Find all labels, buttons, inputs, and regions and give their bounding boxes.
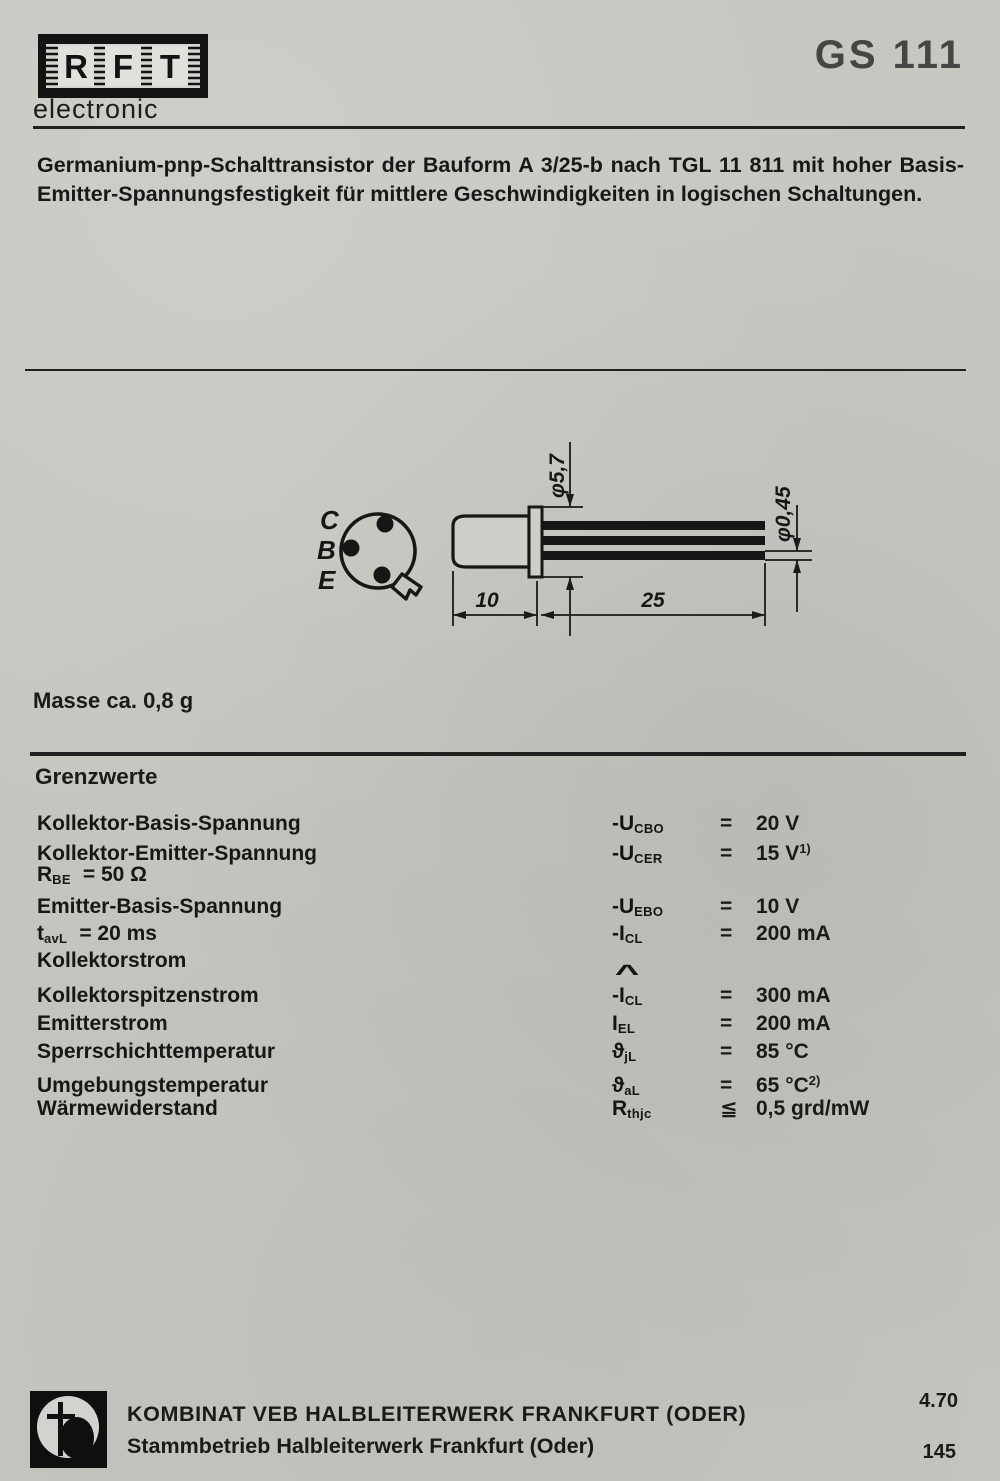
limit-symbol: ^-ICL [612, 983, 720, 1014]
footer-company-line1: KOMBINAT VEB HALBLEITERWERK FRANKFURT (O… [127, 1402, 746, 1427]
limit-row-emitter-current: Emitterstrom IEL = 200 mA [37, 1011, 967, 1042]
footer-company-line2: Stammbetrieb Halbleiterwerk Frankfurt (O… [127, 1434, 594, 1459]
dim-arrow [566, 577, 574, 590]
limit-label: Kollektorstrom [37, 948, 612, 974]
pin-dot-c [377, 516, 394, 533]
pin-label-b: B [317, 535, 336, 565]
package-drawing: C B E φ5,7 [280, 430, 840, 660]
description-paragraph: Germanium-pnp-Schalttransistor der Baufo… [37, 151, 964, 209]
limit-relation: = [720, 894, 756, 920]
mass-note: Masse ca. 0,8 g [33, 688, 193, 714]
limit-row-collector-current: Kollektorstrom [37, 948, 967, 974]
brand-subtitle: electronic [33, 94, 159, 125]
rft-letter-r: R [64, 48, 88, 85]
datasheet-page: R F T electronic GS 111 Germanium-pnp-Sc… [0, 0, 1000, 1481]
transistor-flange [529, 507, 542, 577]
dim-label-body-length: 10 [475, 589, 499, 612]
footnote-marker: 1) [799, 841, 811, 856]
limit-value: 65 °C2) [756, 1068, 967, 1099]
dim-lengths [453, 563, 765, 626]
limit-relation: ≦ [720, 1096, 756, 1122]
limit-value: 0,5 grd/mW [756, 1096, 967, 1122]
limit-relation: = [720, 983, 756, 1009]
hfo-logo [30, 1391, 107, 1468]
dim-arrow [524, 611, 537, 619]
limit-label: Kollektorspitzenstrom [37, 983, 612, 1009]
transistor-body [453, 516, 529, 567]
limit-symbol: Rthjc [612, 1096, 720, 1127]
section-rule-1 [25, 369, 966, 371]
limit-symbol: ϑjL [612, 1039, 720, 1070]
limit-row-junction-temperature: Sperrschichttemperatur ϑjL = 85 °C [37, 1039, 967, 1070]
part-number: GS 111 [815, 33, 964, 78]
rft-logo: R F T [38, 34, 208, 98]
transistor-leads [542, 521, 765, 560]
limit-value: 10 V [756, 894, 967, 920]
pin-dot-b [343, 540, 360, 557]
dim-label-flange-diameter: φ5,7 [546, 453, 569, 498]
header-rule [33, 126, 965, 129]
dim-arrow [453, 611, 466, 619]
limit-relation: = [720, 1039, 756, 1065]
limit-symbol: IEL [612, 1011, 720, 1042]
limit-value: 20 V [756, 806, 967, 837]
dim-label-lead-length: 25 [640, 589, 665, 612]
limit-label: Kollektor-Basis-Spannung [37, 811, 612, 837]
section-rule-2 [30, 752, 966, 756]
pinout-index-tab [392, 574, 421, 599]
limit-value: 85 °C [756, 1039, 967, 1065]
rft-letter-t: T [160, 48, 180, 85]
footnote-marker: 2) [809, 1073, 821, 1088]
limit-relation: = [720, 1011, 756, 1037]
condition-text: RBE= 50 Ω [37, 862, 612, 893]
limit-value: 200 mA [756, 921, 967, 947]
dim-arrow [541, 611, 554, 619]
footer-date-code: 4.70 [919, 1390, 958, 1413]
limit-label: Emitter-Basis-Spannung [37, 894, 612, 920]
pin-label-c: C [320, 505, 340, 535]
dim-arrow [752, 611, 765, 619]
limit-relation: = [720, 921, 756, 947]
peak-hat-icon: ^ [598, 966, 657, 982]
footer-page-number: 145 [923, 1441, 956, 1464]
limit-row-collector-peak-current: Kollektorspitzenstrom ^-ICL = 300 mA [37, 983, 967, 1014]
limits-title: Grenzwerte [35, 764, 158, 790]
limit-label: Emitterstrom [37, 1011, 612, 1037]
limit-row-condition-rbe: RBE= 50 Ω [37, 862, 967, 893]
pin-label-e: E [318, 565, 336, 595]
dim-arrow [793, 560, 801, 573]
limit-label: Wärmewiderstand [37, 1096, 612, 1122]
limit-row-thermal-resistance: Wärmewiderstand Rthjc ≦ 0,5 grd/mW [37, 1096, 967, 1127]
limit-label: Sperrschichttemperatur [37, 1039, 612, 1065]
rft-logo-letters: R F T [58, 46, 188, 86]
pin-dot-e [374, 567, 391, 584]
limit-relation: = [720, 811, 756, 837]
limit-value: 200 mA [756, 1011, 967, 1037]
limit-value: 300 mA [756, 983, 967, 1009]
dim-label-lead-diameter: φ0,45 [772, 486, 795, 542]
rft-letter-f: F [113, 48, 133, 85]
